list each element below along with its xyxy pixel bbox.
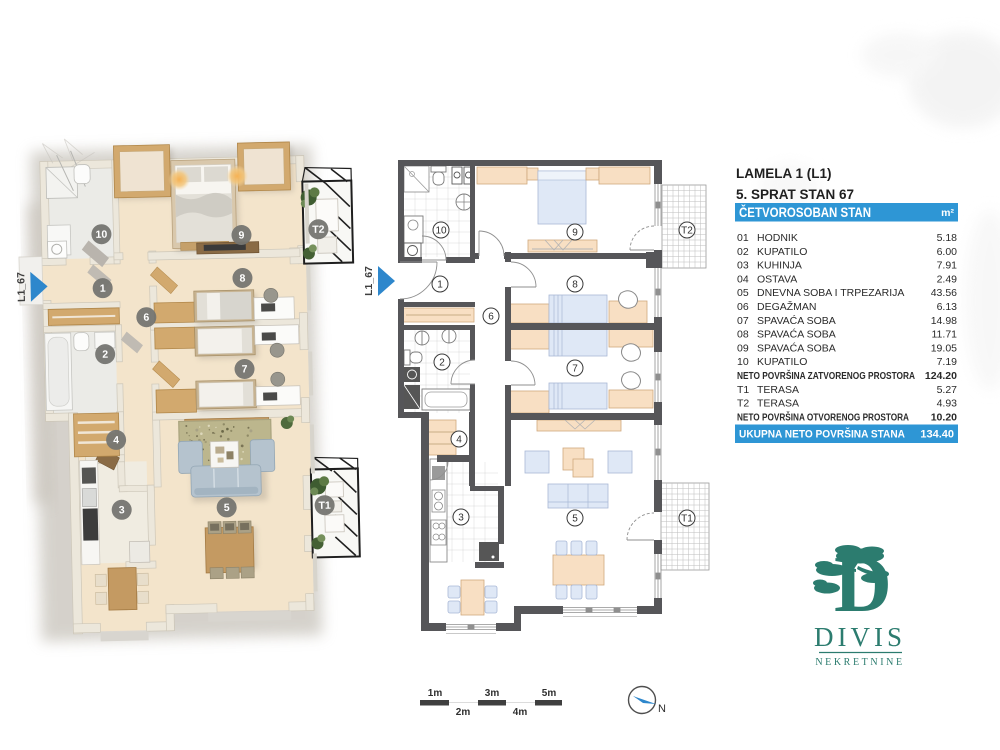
- svg-text:8: 8: [239, 272, 245, 284]
- svg-text:m²: m²: [941, 207, 954, 219]
- svg-text:1: 1: [100, 283, 106, 295]
- svg-text:L1_67: L1_67: [15, 272, 28, 302]
- svg-text:7.19: 7.19: [937, 356, 958, 368]
- svg-text:T2: T2: [312, 224, 325, 236]
- svg-text:05: 05: [737, 287, 749, 299]
- svg-text:TERASA: TERASA: [757, 384, 799, 396]
- svg-text:06: 06: [737, 301, 749, 313]
- svg-text:09: 09: [737, 342, 749, 354]
- svg-text:5m: 5m: [542, 688, 557, 699]
- svg-text:04: 04: [737, 273, 749, 285]
- svg-text:9: 9: [238, 229, 244, 241]
- svg-text:4.93: 4.93: [937, 398, 958, 410]
- svg-text:6: 6: [143, 312, 149, 324]
- svg-text:1m: 1m: [428, 688, 443, 699]
- svg-text:NEKRETNINE: NEKRETNINE: [815, 657, 904, 668]
- svg-text:3: 3: [119, 504, 125, 516]
- svg-text:02: 02: [737, 246, 749, 258]
- svg-text:OSTAVA: OSTAVA: [757, 273, 797, 285]
- svg-text:KUPATILO: KUPATILO: [757, 246, 807, 258]
- svg-text:01: 01: [737, 232, 749, 244]
- svg-text:7: 7: [241, 363, 247, 375]
- svg-text:6: 6: [488, 312, 494, 323]
- svg-text:10.20: 10.20: [931, 411, 957, 423]
- svg-text:2.49: 2.49: [937, 273, 958, 285]
- svg-text:DNEVNA SOBA I TRPEZARIJA: DNEVNA SOBA I TRPEZARIJA: [757, 287, 904, 299]
- svg-text:11.71: 11.71: [932, 329, 958, 341]
- svg-text:10: 10: [435, 226, 447, 237]
- svg-text:SPAVAĆA SOBA: SPAVAĆA SOBA: [757, 341, 836, 354]
- svg-text:3: 3: [458, 513, 464, 524]
- svg-text:07: 07: [737, 315, 749, 327]
- svg-text:L1_67: L1_67: [363, 266, 375, 296]
- svg-text:10: 10: [737, 356, 749, 368]
- svg-text:N: N: [658, 703, 666, 715]
- svg-text:43.56: 43.56: [931, 287, 957, 299]
- svg-text:7: 7: [572, 364, 578, 375]
- svg-text:HODNIK: HODNIK: [757, 232, 798, 244]
- svg-text:5.27: 5.27: [937, 384, 958, 396]
- svg-text:DEGAŽMAN: DEGAŽMAN: [757, 300, 817, 313]
- svg-text:SPAVAĆA SOBA: SPAVAĆA SOBA: [757, 314, 836, 327]
- svg-text:124.20: 124.20: [925, 370, 957, 382]
- svg-text:2: 2: [102, 349, 108, 361]
- svg-text:DIVIS: DIVIS: [814, 622, 906, 652]
- svg-text:5. SPRAT STAN 67: 5. SPRAT STAN 67: [736, 187, 854, 202]
- svg-text:NETO POVRŠINA OTVORENOG PROSTO: NETO POVRŠINA OTVORENOG PROSTORA: [737, 410, 909, 423]
- svg-text:2m: 2m: [456, 707, 471, 718]
- svg-text:10: 10: [95, 229, 107, 241]
- svg-text:3m: 3m: [485, 688, 500, 699]
- svg-text:9: 9: [572, 228, 578, 239]
- svg-text:4: 4: [113, 434, 119, 446]
- svg-text:5.18: 5.18: [937, 232, 958, 244]
- svg-text:08: 08: [737, 329, 749, 341]
- svg-text:2: 2: [439, 358, 445, 369]
- svg-text:4m: 4m: [513, 707, 528, 718]
- svg-text:4: 4: [456, 435, 462, 446]
- svg-text:T1: T1: [681, 514, 693, 525]
- svg-text:KUPATILO: KUPATILO: [757, 356, 807, 368]
- svg-text:T2: T2: [681, 226, 693, 237]
- svg-text:T1: T1: [318, 500, 331, 512]
- svg-text:03: 03: [737, 260, 749, 272]
- svg-text:8: 8: [572, 280, 578, 291]
- svg-text:14.98: 14.98: [931, 315, 957, 327]
- svg-text:6.00: 6.00: [937, 246, 958, 258]
- svg-text:LAMELA 1 (L1): LAMELA 1 (L1): [736, 166, 832, 181]
- svg-text:7.91: 7.91: [937, 260, 958, 272]
- svg-text:5: 5: [224, 502, 230, 514]
- svg-text:KUHINJA: KUHINJA: [757, 260, 802, 272]
- svg-text:TERASA: TERASA: [757, 398, 799, 410]
- svg-text:6.13: 6.13: [937, 301, 958, 313]
- svg-text:T1: T1: [737, 384, 749, 396]
- svg-text:UKUPNA NETO POVRŠINA STANA: UKUPNA NETO POVRŠINA STANA: [739, 428, 905, 441]
- svg-text:1: 1: [437, 280, 443, 291]
- svg-text:SPAVAĆA SOBA: SPAVAĆA SOBA: [757, 328, 836, 341]
- svg-text:19.05: 19.05: [931, 342, 957, 354]
- svg-text:T2: T2: [737, 398, 749, 410]
- svg-text:134.40: 134.40: [920, 429, 954, 441]
- svg-text:ČETVOROSOBAN STAN: ČETVOROSOBAN STAN: [739, 205, 871, 220]
- svg-text:NETO POVRŠINA ZATVORENOG PROST: NETO POVRŠINA ZATVORENOG PROSTORA: [737, 369, 915, 382]
- svg-text:5: 5: [572, 514, 578, 525]
